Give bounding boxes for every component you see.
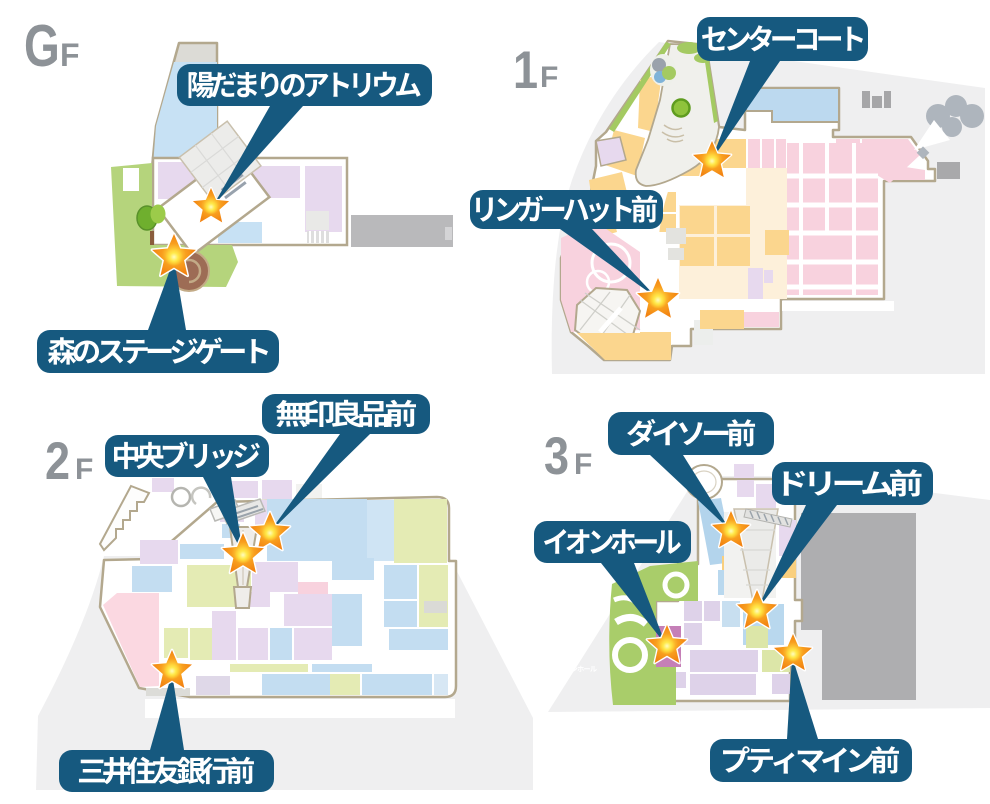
svg-text:F: F xyxy=(540,61,558,94)
svg-text:F: F xyxy=(574,448,592,481)
svg-text:G: G xyxy=(24,14,60,80)
svg-text:2: 2 xyxy=(45,432,70,491)
svg-text:F: F xyxy=(60,37,80,73)
svg-text:1: 1 xyxy=(513,41,538,100)
svg-text:3: 3 xyxy=(544,427,569,486)
svg-text:F: F xyxy=(75,453,93,486)
